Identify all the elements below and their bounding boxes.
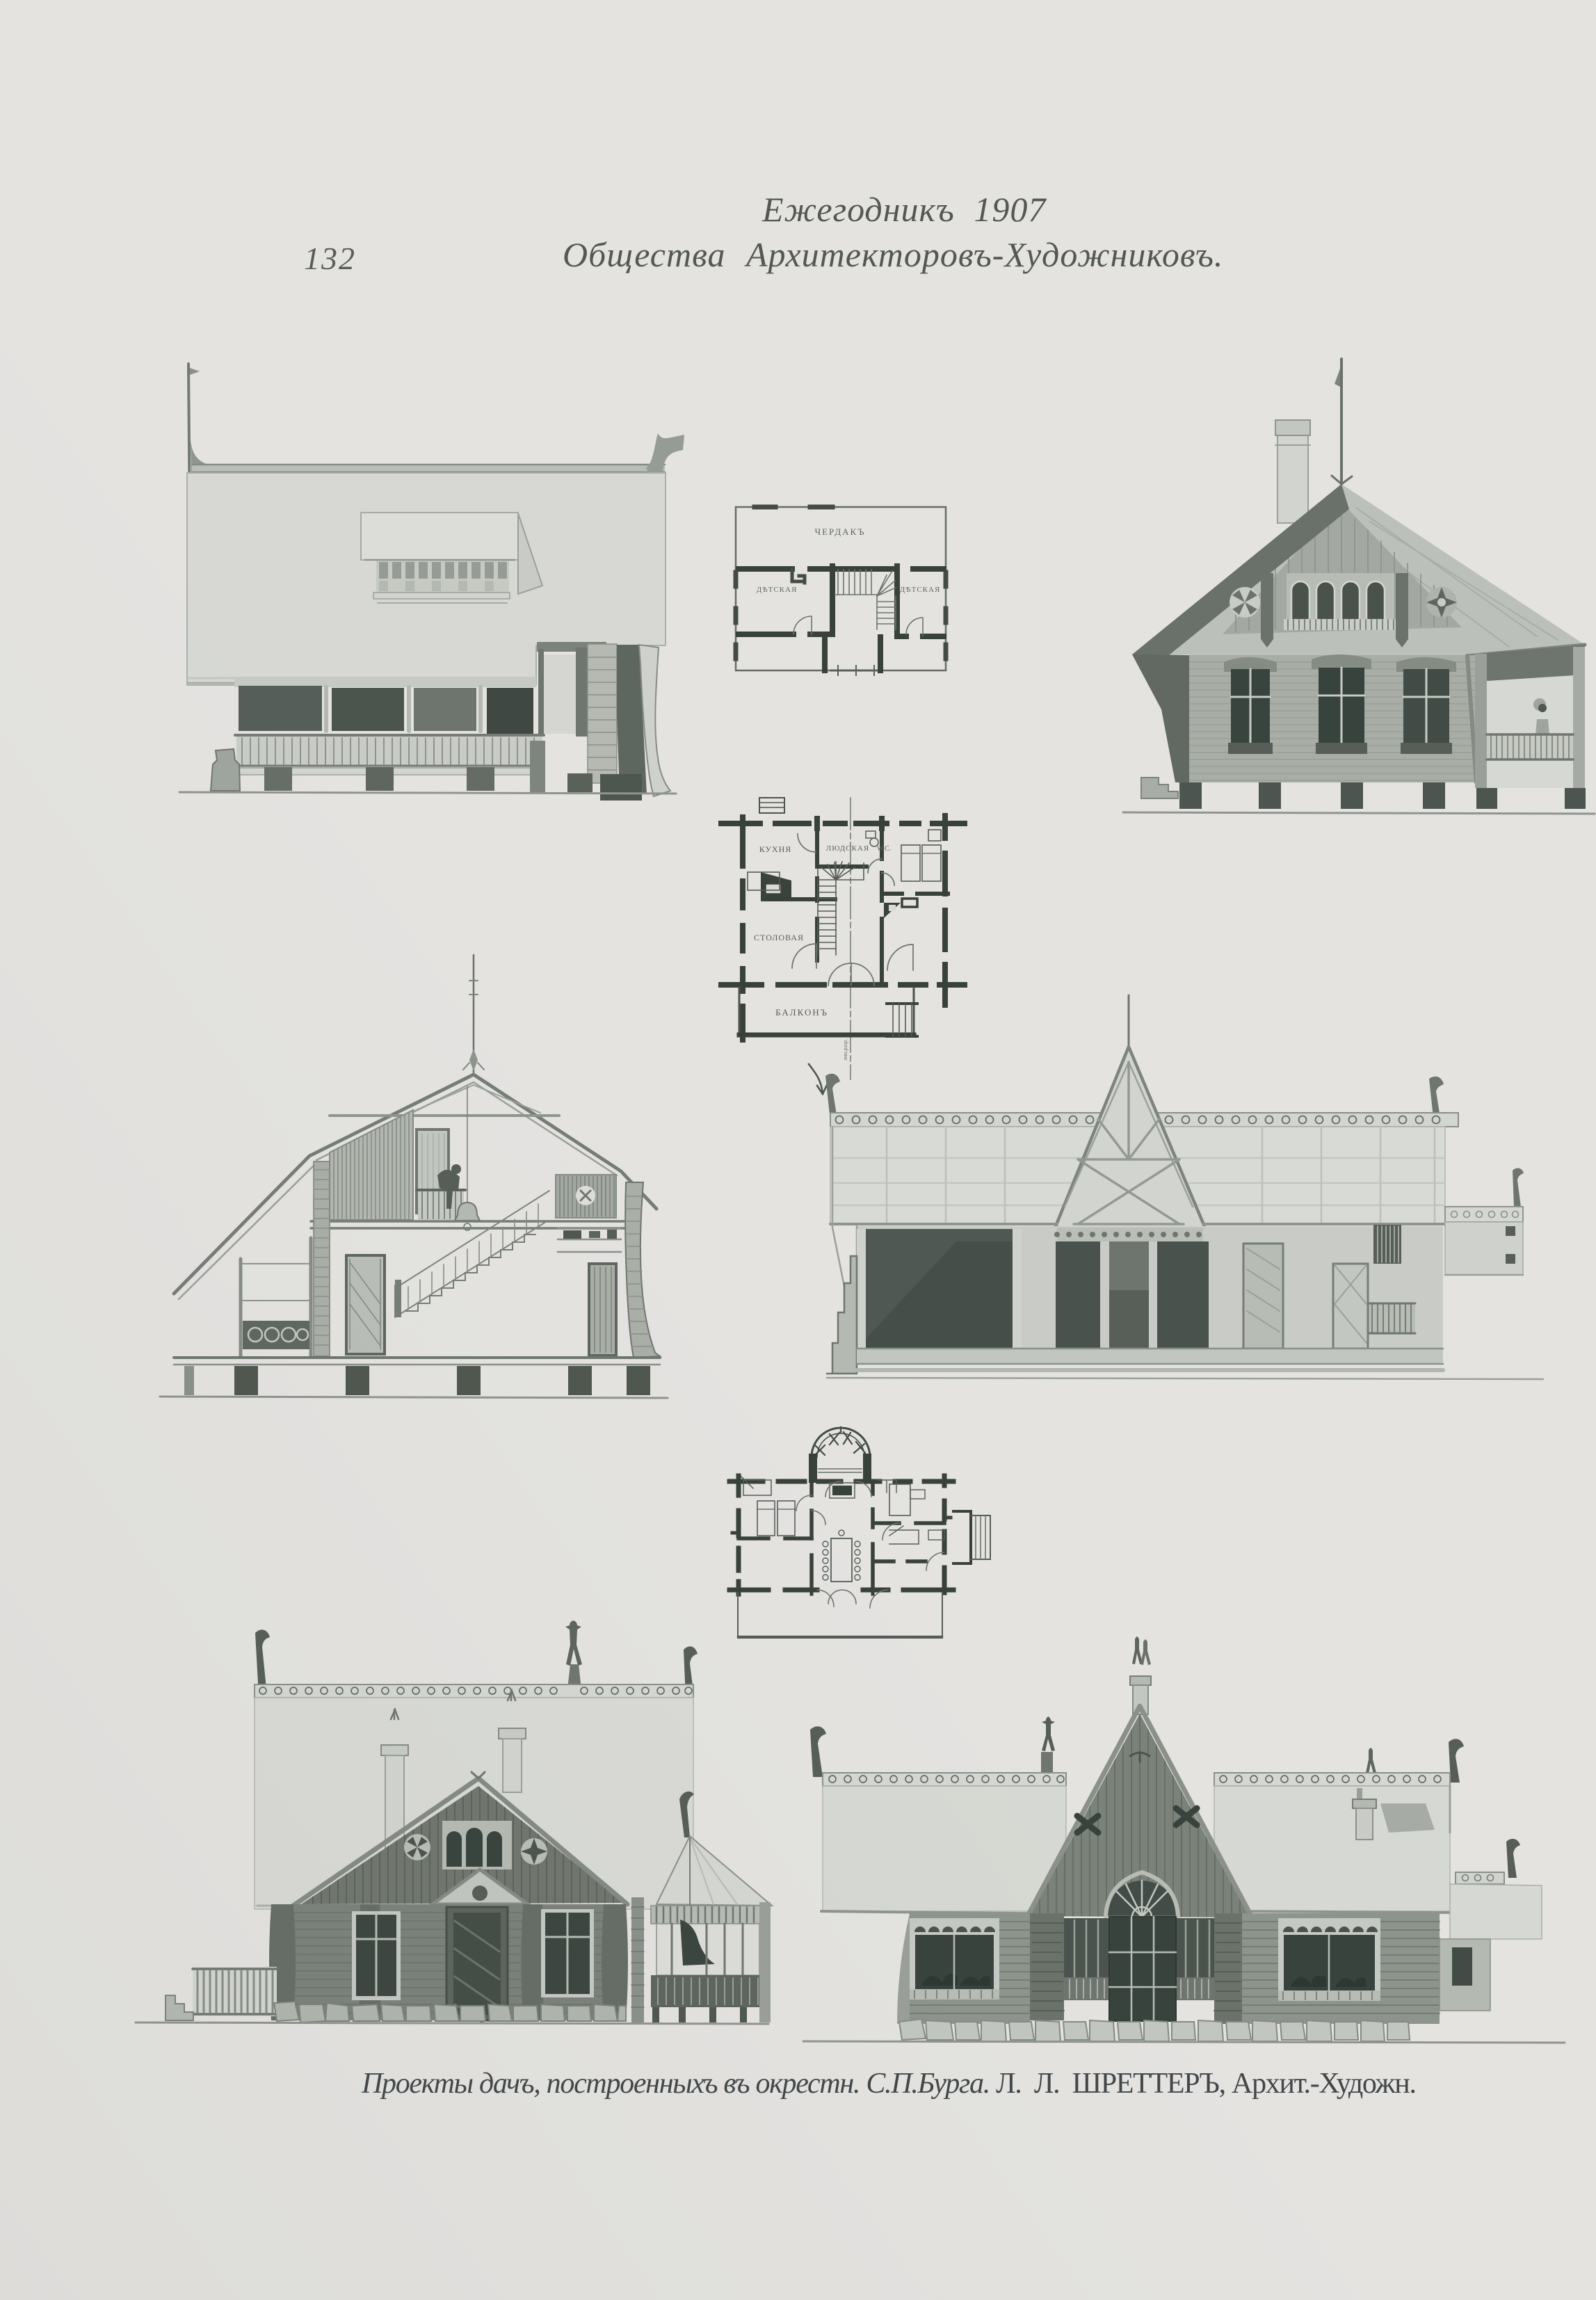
svg-text:ЛЮДСКАЯ: ЛЮДСКАЯ [826,844,869,853]
svg-text:W.C.: W.C. [877,845,891,853]
svg-text:ДѢТСКАЯ: ДѢТСКАЯ [757,586,798,594]
svg-text:ДѢТСКАЯ: ДѢТСКАЯ [900,586,941,594]
svg-text:КУХНЯ: КУХНЯ [759,844,792,854]
svg-text:ЧЕРДАКЪ: ЧЕРДАКЪ [815,526,866,537]
svg-text:лин.разр.: лин.разр. [842,1039,848,1061]
svg-text:БАЛКОНЪ: БАЛКОНЪ [775,1007,828,1018]
svg-text:СТОЛОВАЯ: СТОЛОВАЯ [754,933,804,942]
